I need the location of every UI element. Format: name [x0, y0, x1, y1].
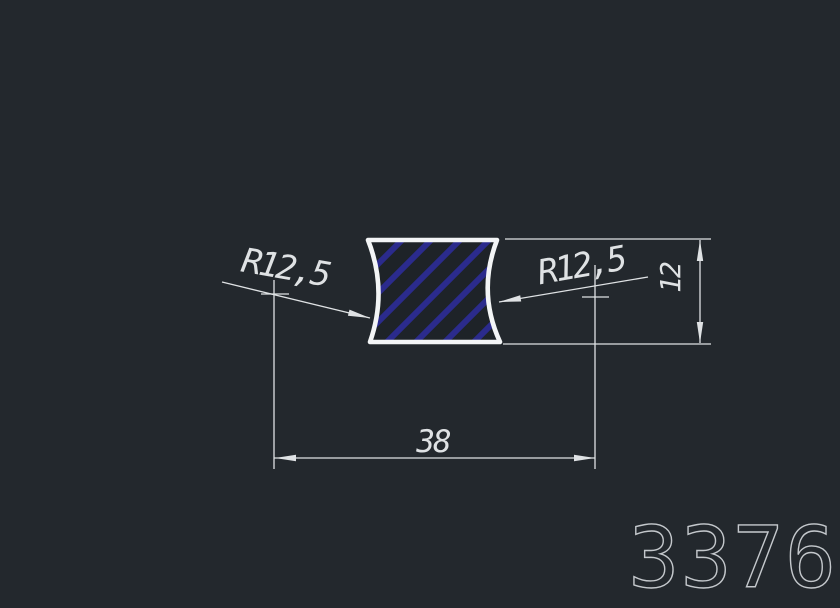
radius-leader-left	[222, 282, 370, 318]
drawing-number: 3376	[628, 516, 837, 601]
radius-arrow-left	[348, 310, 370, 318]
radius-arrow-right	[499, 295, 521, 302]
width-arrow-right	[574, 455, 595, 461]
cad-viewport: R12,5 R12,5 12 38 3376	[0, 0, 840, 600]
radius-leader-right	[499, 277, 648, 302]
height-arrow-top	[697, 240, 703, 261]
width-arrow-left	[275, 455, 296, 461]
height-arrow-bottom	[697, 322, 703, 343]
